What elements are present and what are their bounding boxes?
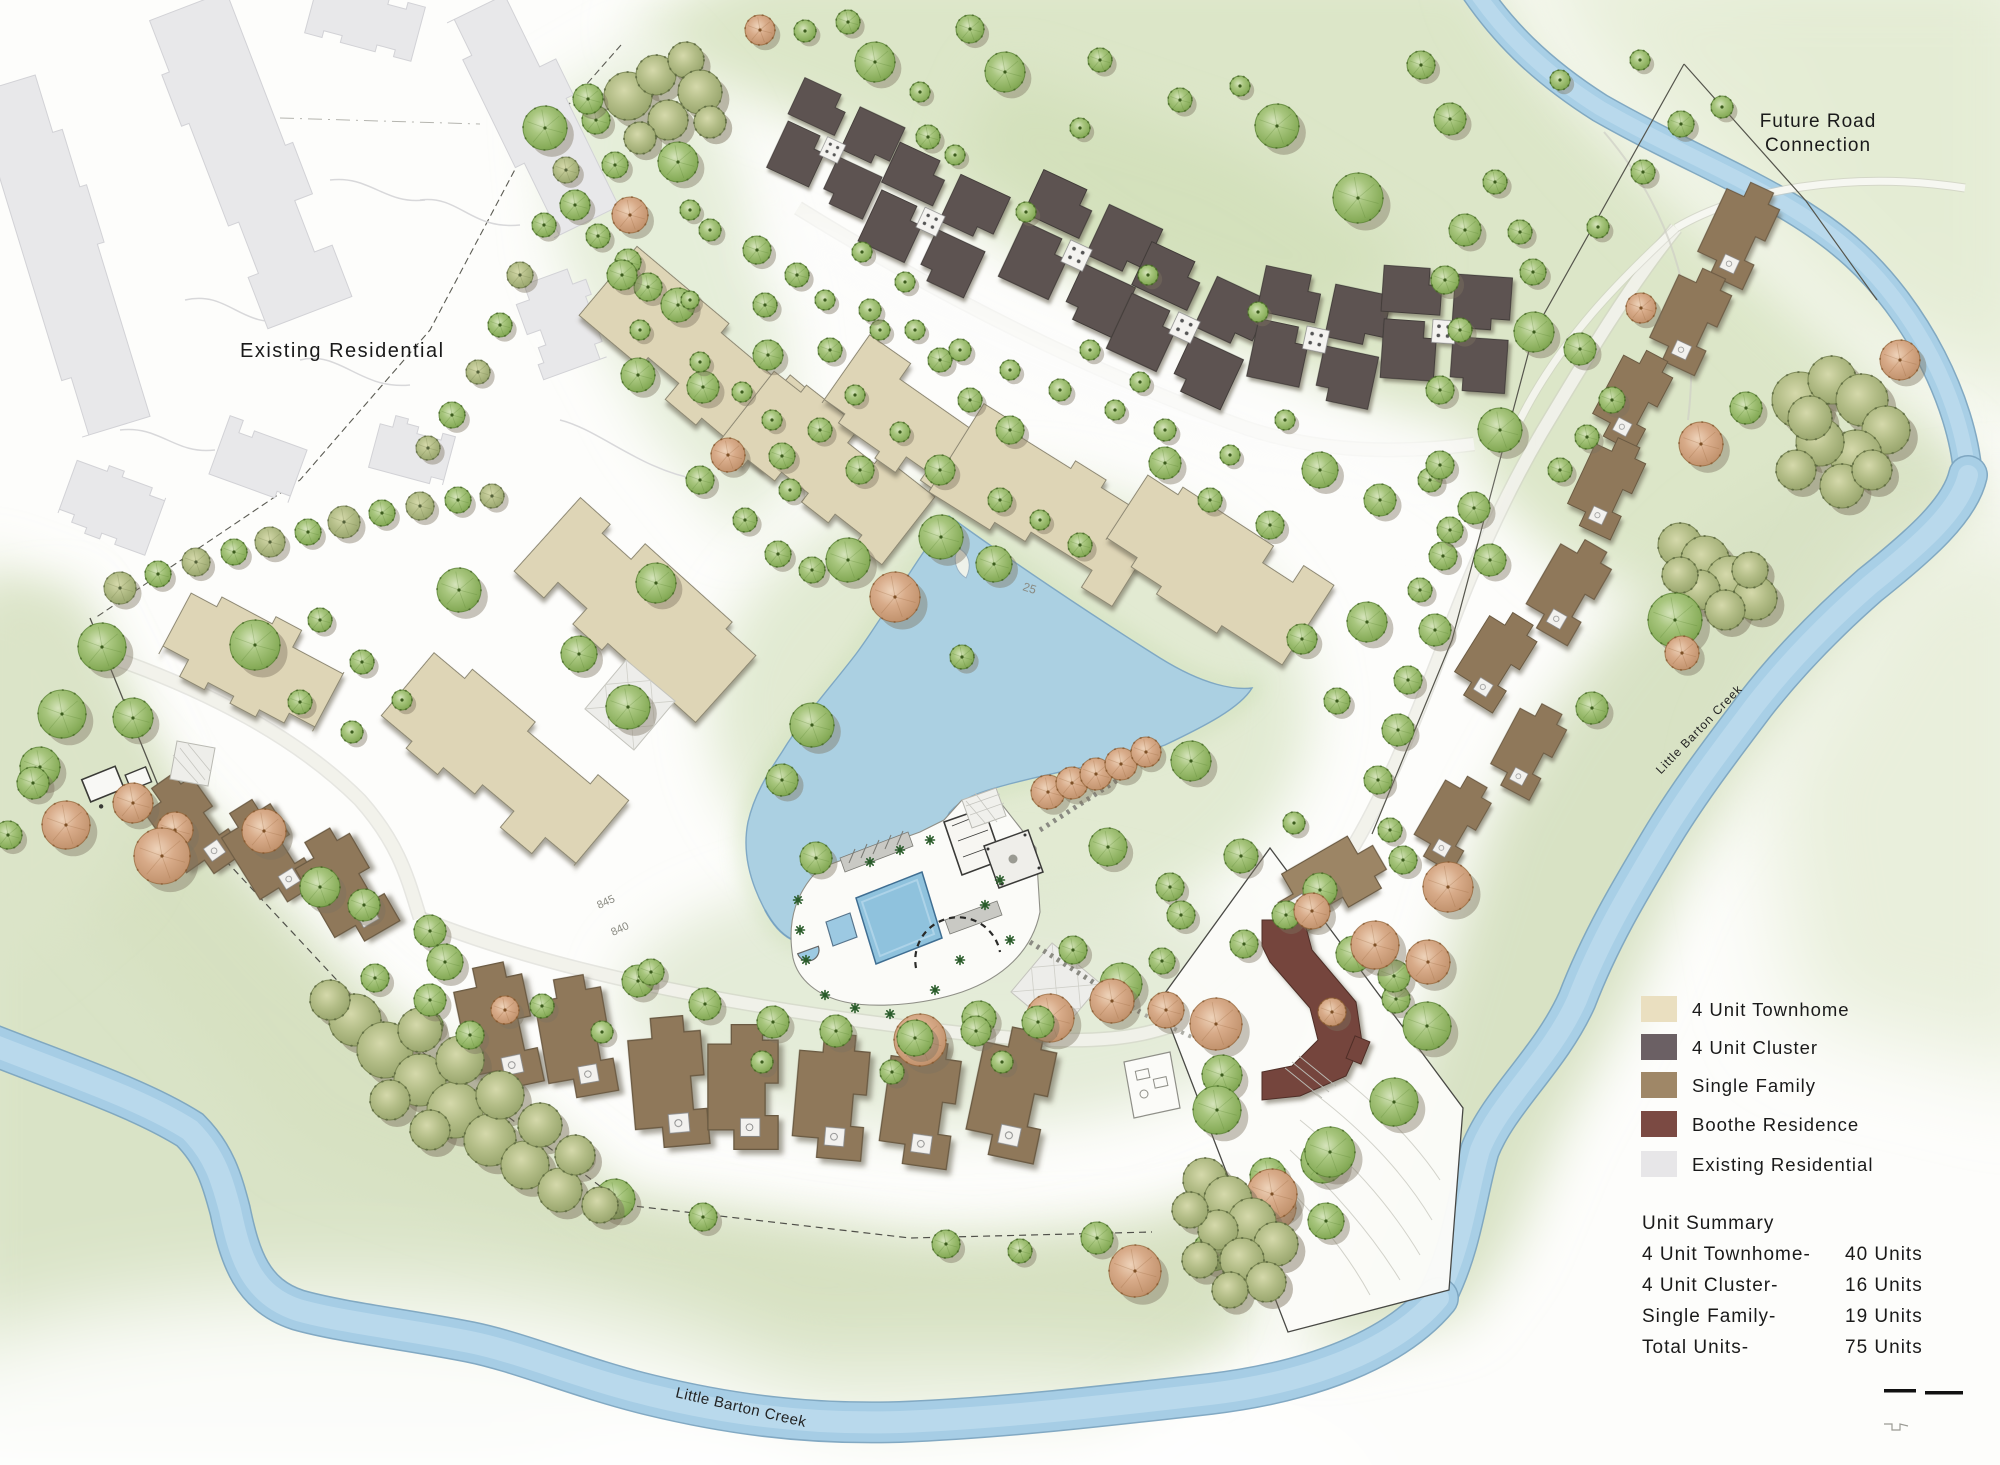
- svg-text:Unit Summary: Unit Summary: [1642, 1213, 1774, 1234]
- svg-text:40 Units: 40 Units: [1845, 1244, 1923, 1265]
- svg-text:75 Units: 75 Units: [1845, 1337, 1923, 1358]
- svg-text:4 Unit Townhome: 4 Unit Townhome: [1692, 999, 1850, 1020]
- svg-text:Single Family-: Single Family-: [1642, 1306, 1776, 1327]
- svg-text:19 Units: 19 Units: [1845, 1306, 1923, 1327]
- svg-text:16 Units: 16 Units: [1845, 1275, 1923, 1296]
- svg-text:4 Unit Cluster-: 4 Unit Cluster-: [1642, 1275, 1778, 1296]
- svg-text:Total Units-: Total Units-: [1642, 1337, 1749, 1358]
- svg-text:4 Unit Cluster: 4 Unit Cluster: [1692, 1037, 1818, 1058]
- svg-text:Boothe Residence: Boothe Residence: [1692, 1114, 1859, 1135]
- svg-text:Existing Residential: Existing Residential: [1692, 1154, 1873, 1175]
- svg-text:Single Family: Single Family: [1692, 1075, 1816, 1096]
- svg-text:4 Unit Townhome-: 4 Unit Townhome-: [1642, 1244, 1811, 1265]
- svg-text:Connection: Connection: [1765, 135, 1871, 156]
- svg-text:Existing Residential: Existing Residential: [240, 340, 445, 362]
- svg-text:Future Road: Future Road: [1760, 111, 1877, 132]
